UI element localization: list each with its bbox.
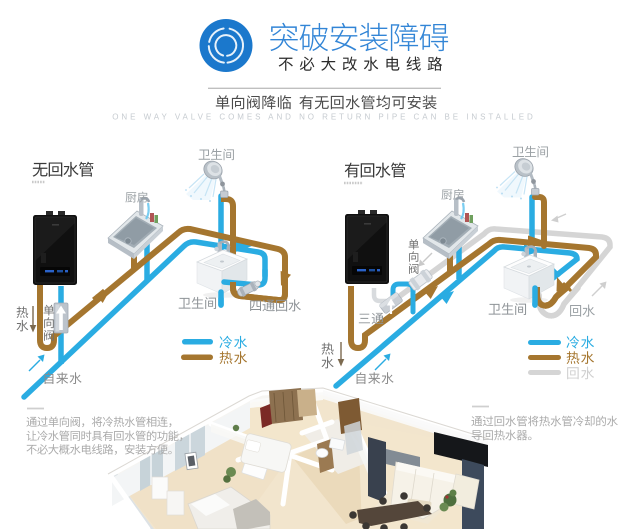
svg-text:ONE WAY VALVE COMES AND NO RET: ONE WAY VALVE COMES AND NO RETURN PIPE C… — [112, 112, 536, 121]
